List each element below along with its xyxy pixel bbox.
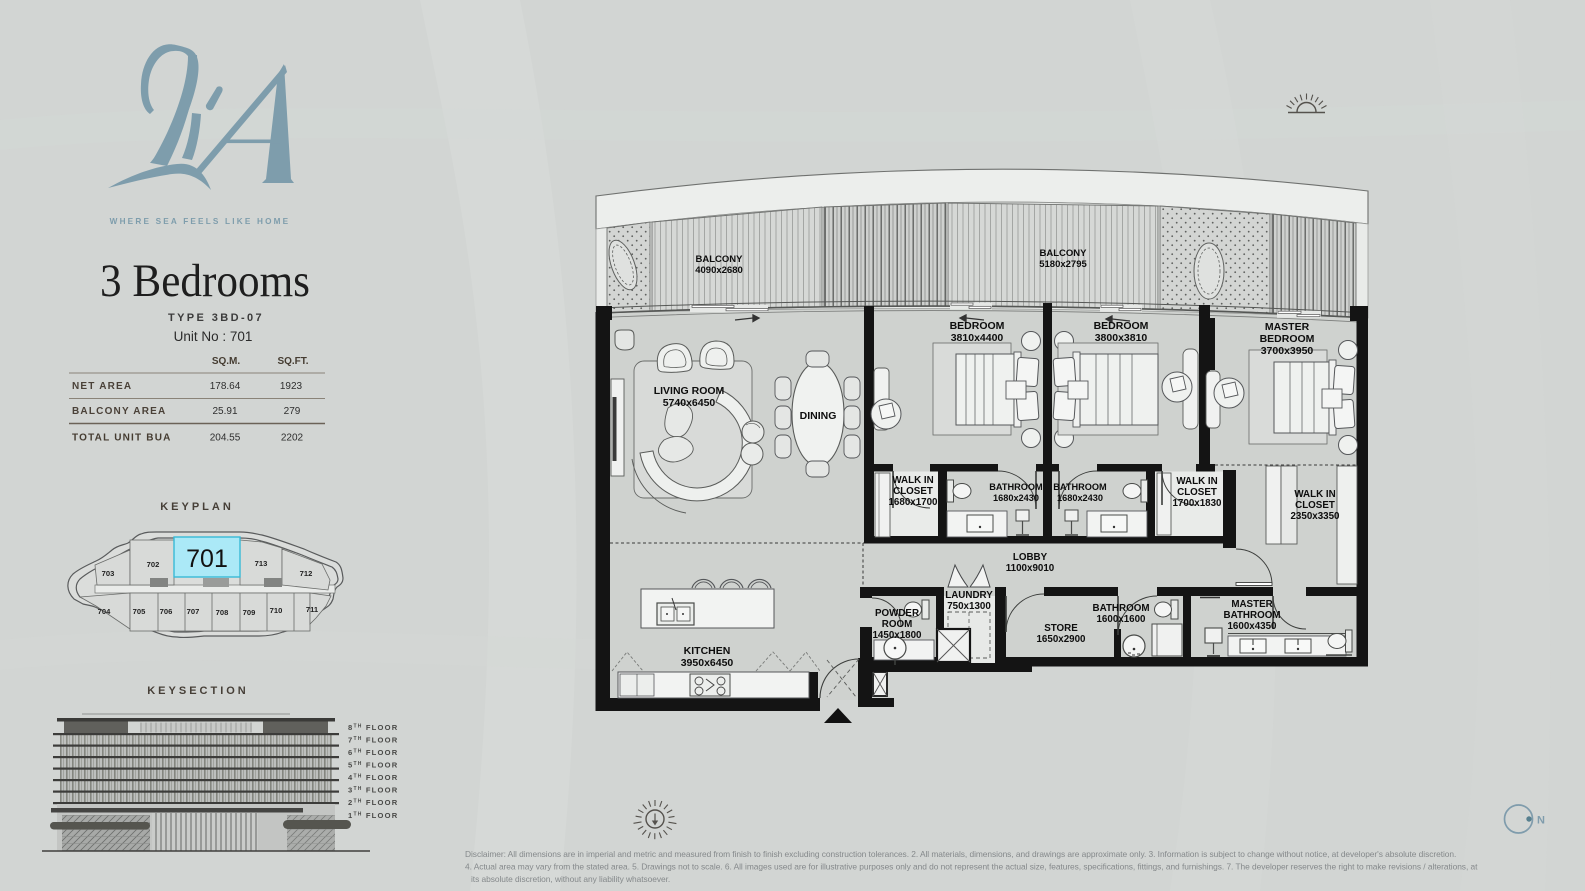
- svg-text:ROOM: ROOM: [882, 619, 912, 630]
- svg-text:704: 704: [98, 607, 111, 616]
- svg-text:713: 713: [255, 559, 268, 568]
- svg-text:1680x2430: 1680x2430: [993, 493, 1039, 503]
- svg-text:NET AREA: NET AREA: [72, 381, 132, 392]
- svg-text:3950x6450: 3950x6450: [681, 657, 734, 669]
- svg-text:701: 701: [186, 545, 228, 573]
- svg-text:25.91: 25.91: [212, 406, 237, 417]
- svg-text:BEDROOM: BEDROOM: [1260, 333, 1315, 345]
- svg-text:WHERE SEA FEELS LIKE HOME: WHERE SEA FEELS LIKE HOME: [110, 217, 291, 226]
- svg-text:5740x6450: 5740x6450: [663, 397, 716, 409]
- svg-text:705: 705: [133, 607, 146, 616]
- svg-text:709: 709: [243, 608, 256, 617]
- svg-text:703: 703: [102, 569, 115, 578]
- svg-text:N: N: [1537, 815, 1546, 827]
- svg-text:708: 708: [216, 608, 229, 617]
- svg-text:BATHROOM: BATHROOM: [1224, 610, 1281, 621]
- svg-text:1650x2900: 1650x2900: [1036, 634, 1086, 645]
- svg-text:Unit No : 701: Unit No : 701: [174, 329, 253, 344]
- svg-text:DINING: DINING: [800, 410, 837, 422]
- svg-text:MASTER: MASTER: [1231, 599, 1272, 610]
- svg-text:1600x4350: 1600x4350: [1227, 621, 1277, 632]
- svg-text:CLOSET: CLOSET: [1295, 500, 1335, 511]
- svg-text:1450x1800: 1450x1800: [872, 630, 922, 641]
- svg-text:279: 279: [284, 406, 301, 417]
- svg-text:178.64: 178.64: [210, 381, 241, 392]
- svg-text:KITCHEN: KITCHEN: [684, 645, 731, 657]
- svg-text:707: 707: [187, 607, 200, 616]
- svg-text:CLOSET: CLOSET: [893, 486, 933, 497]
- svg-text:BATHROOM: BATHROOM: [989, 482, 1043, 492]
- svg-text:3 Bedrooms: 3 Bedrooms: [100, 255, 310, 307]
- svg-text:LOBBY: LOBBY: [1013, 552, 1048, 563]
- svg-text:SQ.FT.: SQ.FT.: [277, 356, 308, 367]
- svg-text:4090x2680: 4090x2680: [695, 265, 743, 276]
- svg-text:LIVING ROOM: LIVING ROOM: [654, 385, 725, 397]
- svg-text:3800x3810: 3800x3810: [1095, 332, 1148, 344]
- svg-text:TOTAL UNIT BUA: TOTAL UNIT BUA: [72, 433, 172, 444]
- svg-text:WALK IN: WALK IN: [892, 475, 933, 486]
- svg-text:BALCONY AREA: BALCONY AREA: [72, 406, 166, 417]
- svg-text:CLOSET: CLOSET: [1177, 487, 1217, 498]
- svg-text:BATHROOM: BATHROOM: [1093, 603, 1150, 614]
- svg-text:706: 706: [160, 607, 173, 616]
- svg-text:MASTER: MASTER: [1265, 321, 1310, 333]
- svg-text:POWDER: POWDER: [875, 608, 919, 619]
- svg-text:Disclaimer: All dimensions are: Disclaimer: All dimensions are in imperi…: [465, 849, 1456, 859]
- svg-text:5180x2795: 5180x2795: [1039, 259, 1087, 270]
- svg-text:BATHROOM: BATHROOM: [1053, 482, 1107, 492]
- svg-text:2350x3350: 2350x3350: [1290, 511, 1340, 522]
- svg-text:1600x1600: 1600x1600: [1096, 614, 1146, 625]
- svg-text:BALCONY: BALCONY: [696, 254, 744, 265]
- svg-text:LAUNDRY: LAUNDRY: [945, 590, 993, 601]
- svg-text:TYPE 3BD-07: TYPE 3BD-07: [168, 312, 264, 324]
- svg-text:4. Actual area may vary from t: 4. Actual area may vary from the stated …: [465, 862, 1478, 872]
- svg-text:2202: 2202: [281, 433, 304, 444]
- svg-text:1680x2430: 1680x2430: [1057, 493, 1103, 503]
- svg-text:3700x3950: 3700x3950: [1261, 345, 1314, 357]
- svg-text:BEDROOM: BEDROOM: [950, 320, 1005, 332]
- svg-text:3810x4400: 3810x4400: [951, 332, 1004, 344]
- svg-text:702: 702: [147, 560, 160, 569]
- svg-text:712: 712: [300, 569, 313, 578]
- svg-text:WALK IN: WALK IN: [1176, 476, 1217, 487]
- svg-text:750x1300: 750x1300: [947, 601, 991, 612]
- svg-text:BALCONY: BALCONY: [1040, 248, 1088, 259]
- svg-text:1923: 1923: [280, 381, 303, 392]
- svg-text:its absolute discretion, witho: its absolute discretion, without any lia…: [471, 874, 670, 884]
- svg-text:204.55: 204.55: [210, 433, 241, 444]
- svg-text:STORE: STORE: [1044, 623, 1078, 634]
- svg-text:WALK IN: WALK IN: [1294, 489, 1335, 500]
- svg-text:KEYPLAN: KEYPLAN: [160, 501, 234, 513]
- svg-text:711: 711: [306, 605, 319, 614]
- svg-text:710: 710: [270, 606, 283, 615]
- svg-text:1700x1830: 1700x1830: [1172, 498, 1222, 509]
- svg-text:1680x1700: 1680x1700: [888, 497, 938, 508]
- svg-text:KEYSECTION: KEYSECTION: [147, 685, 249, 697]
- svg-text:SQ.M.: SQ.M.: [212, 356, 241, 367]
- svg-text:1100x9010: 1100x9010: [1006, 563, 1055, 574]
- svg-text:BEDROOM: BEDROOM: [1094, 320, 1149, 332]
